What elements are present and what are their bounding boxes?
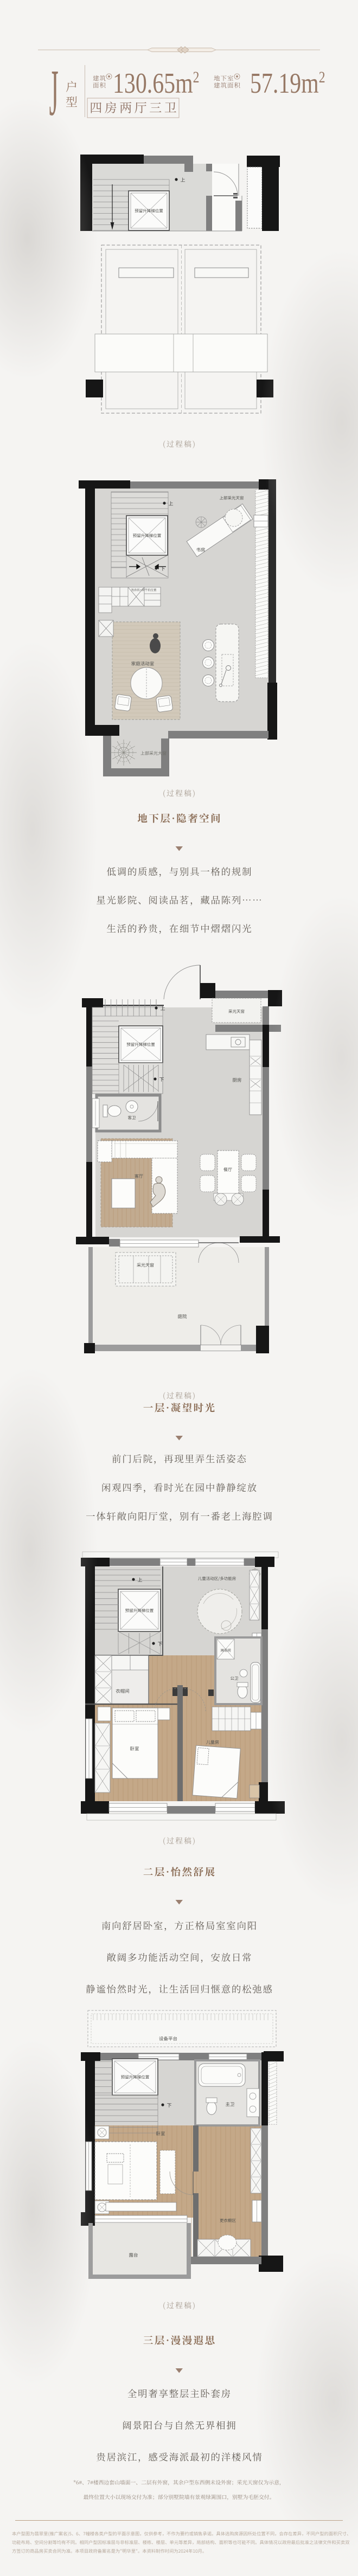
svg-text:130.65m2: 130.65m2 [113,67,200,99]
svg-text:57.19m2: 57.19m2 [250,67,325,99]
svg-text:J: J [49,56,59,130]
